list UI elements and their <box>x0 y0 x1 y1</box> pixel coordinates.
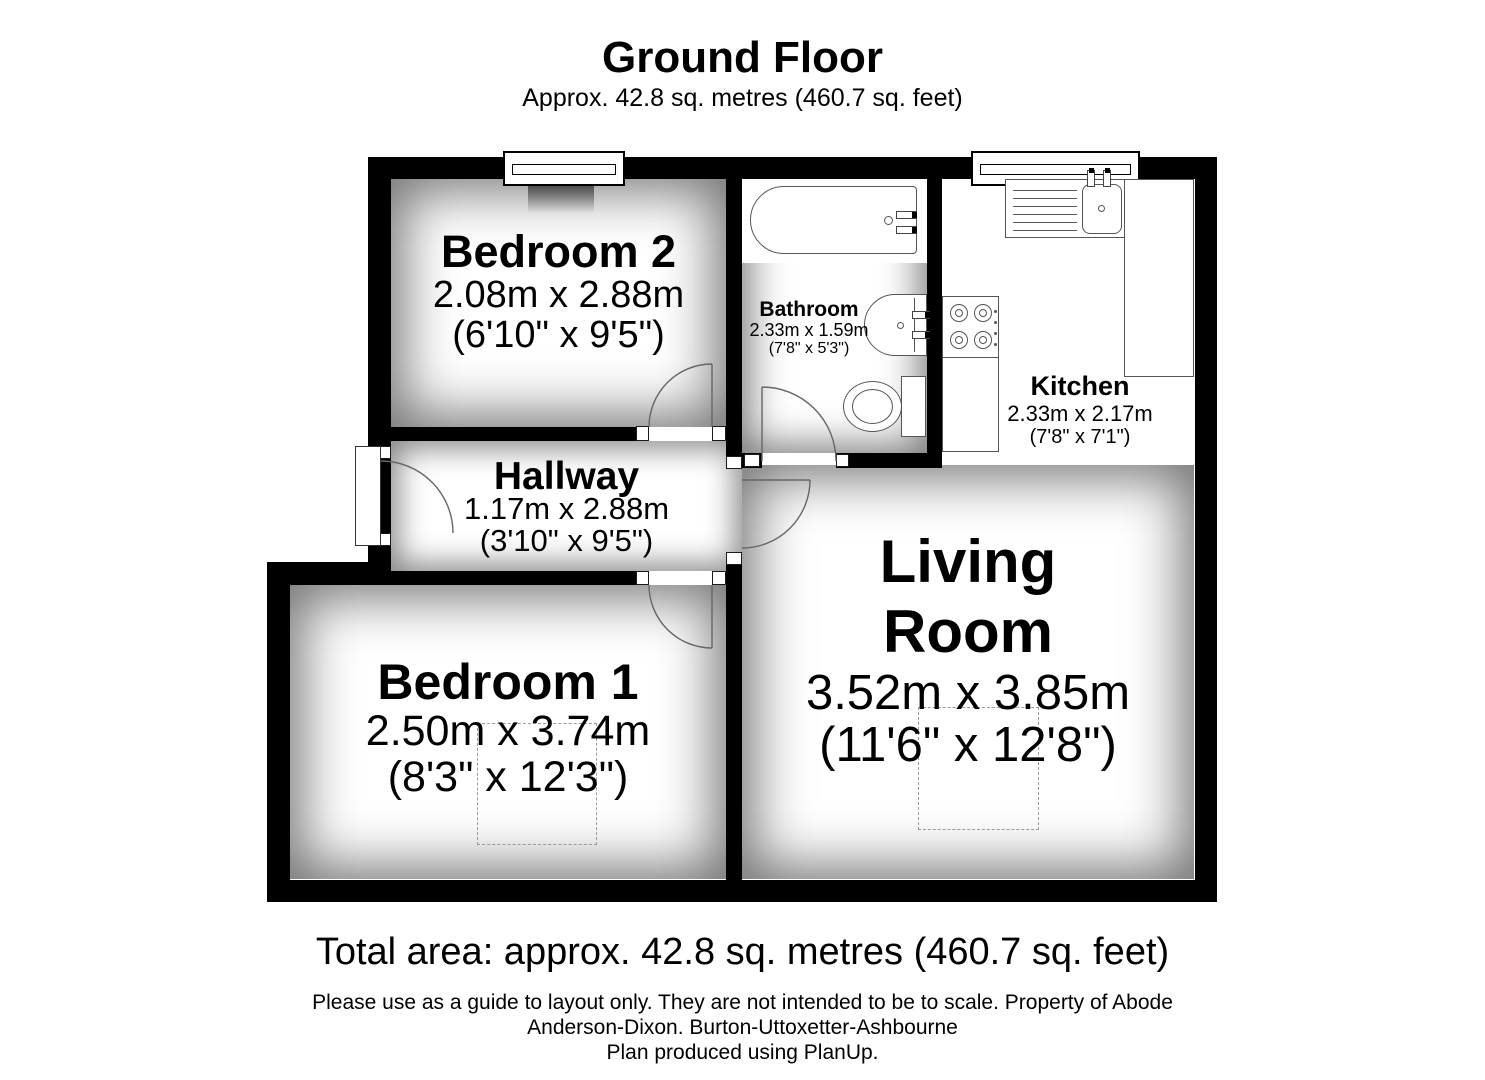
jamb-bedroom1-left <box>636 571 649 585</box>
wall-exterior-left-lower <box>267 562 290 902</box>
living-room-metric: 3.52m x 3.85m <box>742 667 1194 719</box>
wall-exterior-step <box>267 562 391 585</box>
kitchen-tap-icon <box>1103 170 1111 187</box>
sink-drain-icon <box>897 322 904 329</box>
disclaimer-line1: Please use as a guide to layout only. Th… <box>0 990 1485 1015</box>
living-room-imperial: (11'6" x 12'8") <box>742 719 1194 771</box>
wall-junction-lower <box>726 552 742 880</box>
bathroom-metric: 2.33m x 1.59m <box>734 321 884 340</box>
bedroom1-label: Bedroom 1 2.50m x 3.74m (8'3" x 12'3") <box>290 656 726 800</box>
kitchen-name: Kitchen <box>955 372 1205 401</box>
wall-bathroom-kitchen <box>927 179 942 468</box>
bathroom-name: Bathroom <box>734 299 884 321</box>
toilet-bowl-inner <box>852 389 893 424</box>
kitchen-counter-right <box>1124 179 1194 377</box>
bathtub-tap-icon <box>896 226 917 234</box>
sink-tap-icon <box>912 311 930 319</box>
floor-plan-page: Ground Floor Approx. 42.8 sq. metres (46… <box>0 0 1485 1080</box>
hallway-metric: 1.17m x 2.88m <box>391 493 742 525</box>
living-room-name-line1: Living <box>742 527 1194 597</box>
drainer-line <box>1013 198 1077 199</box>
disclaimer-line2: Anderson-Dixon. Burton-Uttoxetter-Ashbou… <box>0 1015 1485 1040</box>
bedroom1-metric: 2.50m x 3.74m <box>290 708 726 754</box>
living-room-label: Living Room 3.52m x 3.85m (11'6" x 12'8"… <box>742 527 1194 771</box>
kitchen-metric: 2.33m x 2.17m <box>955 401 1205 426</box>
wall-exterior-bottom <box>267 880 1217 902</box>
bedroom2-imperial: (6'10" x 9'5") <box>391 315 726 355</box>
drainer-line <box>1013 222 1077 223</box>
bedroom2-metric: 2.08m x 2.88m <box>391 275 726 315</box>
wall-hallway-bedroom1 <box>391 571 637 585</box>
bedroom1-imperial: (8'3" x 12'3") <box>290 754 726 800</box>
sink-counter-edge <box>914 298 915 352</box>
wall-bedroom2-hallway <box>391 427 637 441</box>
bedroom2-label: Bedroom 2 2.08m x 2.88m (6'10" x 9'5") <box>391 228 726 355</box>
window-bedroom2-sash <box>512 164 616 175</box>
jamb-bathroom-door-right <box>836 454 849 467</box>
page-subtitle: Approx. 42.8 sq. metres (460.7 sq. feet) <box>0 84 1485 112</box>
drainer-line <box>1013 190 1077 191</box>
disclaimer-line3: Plan produced using PlanUp. <box>0 1040 1485 1065</box>
jamb-bedroom2-left <box>636 426 649 441</box>
page-title: Ground Floor <box>0 34 1485 82</box>
bathroom-imperial: (7'8" x 5'3") <box>734 340 884 358</box>
bedroom1-name: Bedroom 1 <box>290 656 726 708</box>
hallway-label: Hallway 1.17m x 2.88m (3'10" x 9'5") <box>391 460 742 557</box>
wall-exterior-right <box>1195 157 1217 902</box>
jamb-bedroom2-right <box>712 426 726 441</box>
toilet-cistern-icon <box>901 376 926 437</box>
jamb-bathroom-door-left <box>744 454 760 467</box>
kitchen-sink-drain-icon <box>1098 205 1105 212</box>
living-room-name-line2: Room <box>742 597 1194 667</box>
hob-icon <box>942 296 999 358</box>
drainer-line <box>1013 206 1077 207</box>
total-area-text: Total area: approx. 42.8 sq. metres (460… <box>0 930 1485 974</box>
kitchen-imperial: (7'8" x 7'1") <box>955 426 1205 449</box>
entry-door-frame <box>355 446 381 546</box>
hallway-imperial: (3'10" x 9'5") <box>391 525 742 557</box>
sink-tap-icon <box>912 331 930 339</box>
bathtub-tap-icon <box>896 211 917 219</box>
kitchen-label: Kitchen 2.33m x 2.17m (7'8" x 7'1") <box>955 372 1205 449</box>
kitchen-tap-icon <box>1087 170 1095 187</box>
drainer-line <box>1013 230 1077 231</box>
bathroom-label: Bathroom 2.33m x 1.59m (7'8" x 5'3") <box>734 299 884 358</box>
jamb-bedroom1-right <box>712 571 726 585</box>
bathtub-drain-icon <box>884 216 893 225</box>
hallway-name: Hallway <box>391 460 742 493</box>
drainer-line <box>1013 214 1077 215</box>
bedroom2-name: Bedroom 2 <box>391 228 726 275</box>
